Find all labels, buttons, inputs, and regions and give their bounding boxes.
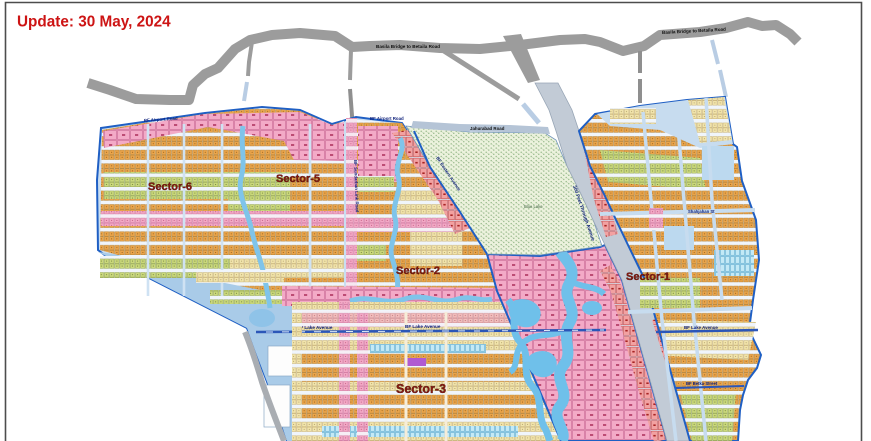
svg-text:Basila Bridge to Betaila Road: Basila Bridge to Betaila Road <box>376 44 440 49</box>
svg-text:Sector-2: Sector-2 <box>396 265 440 277</box>
svg-text:Sector-1: Sector-1 <box>626 271 670 283</box>
svg-text:Sector-5: Sector-5 <box>276 173 320 185</box>
svg-text:Sector-6: Sector-6 <box>148 181 192 193</box>
svg-text:Update: 30 May, 2024: Update: 30 May, 2024 <box>17 14 171 31</box>
svg-text:Jahurabad Road: Jahurabad Road <box>470 126 505 131</box>
svg-text:BF Lake Avenue: BF Lake Avenue <box>297 325 333 330</box>
svg-text:BF Lake Avenue: BF Lake Avenue <box>684 325 718 330</box>
svg-text:BF Airport Road: BF Airport Road <box>370 116 404 121</box>
svg-text:BF Betka Street: BF Betka Street <box>686 381 718 386</box>
svg-text:Shahjahan St: Shahjahan St <box>688 209 715 214</box>
svg-text:Blue Lake: Blue Lake <box>524 204 543 209</box>
svg-text:BF Lake Avenue: BF Lake Avenue <box>405 324 441 329</box>
svg-text:Sector-3: Sector-3 <box>396 382 446 396</box>
